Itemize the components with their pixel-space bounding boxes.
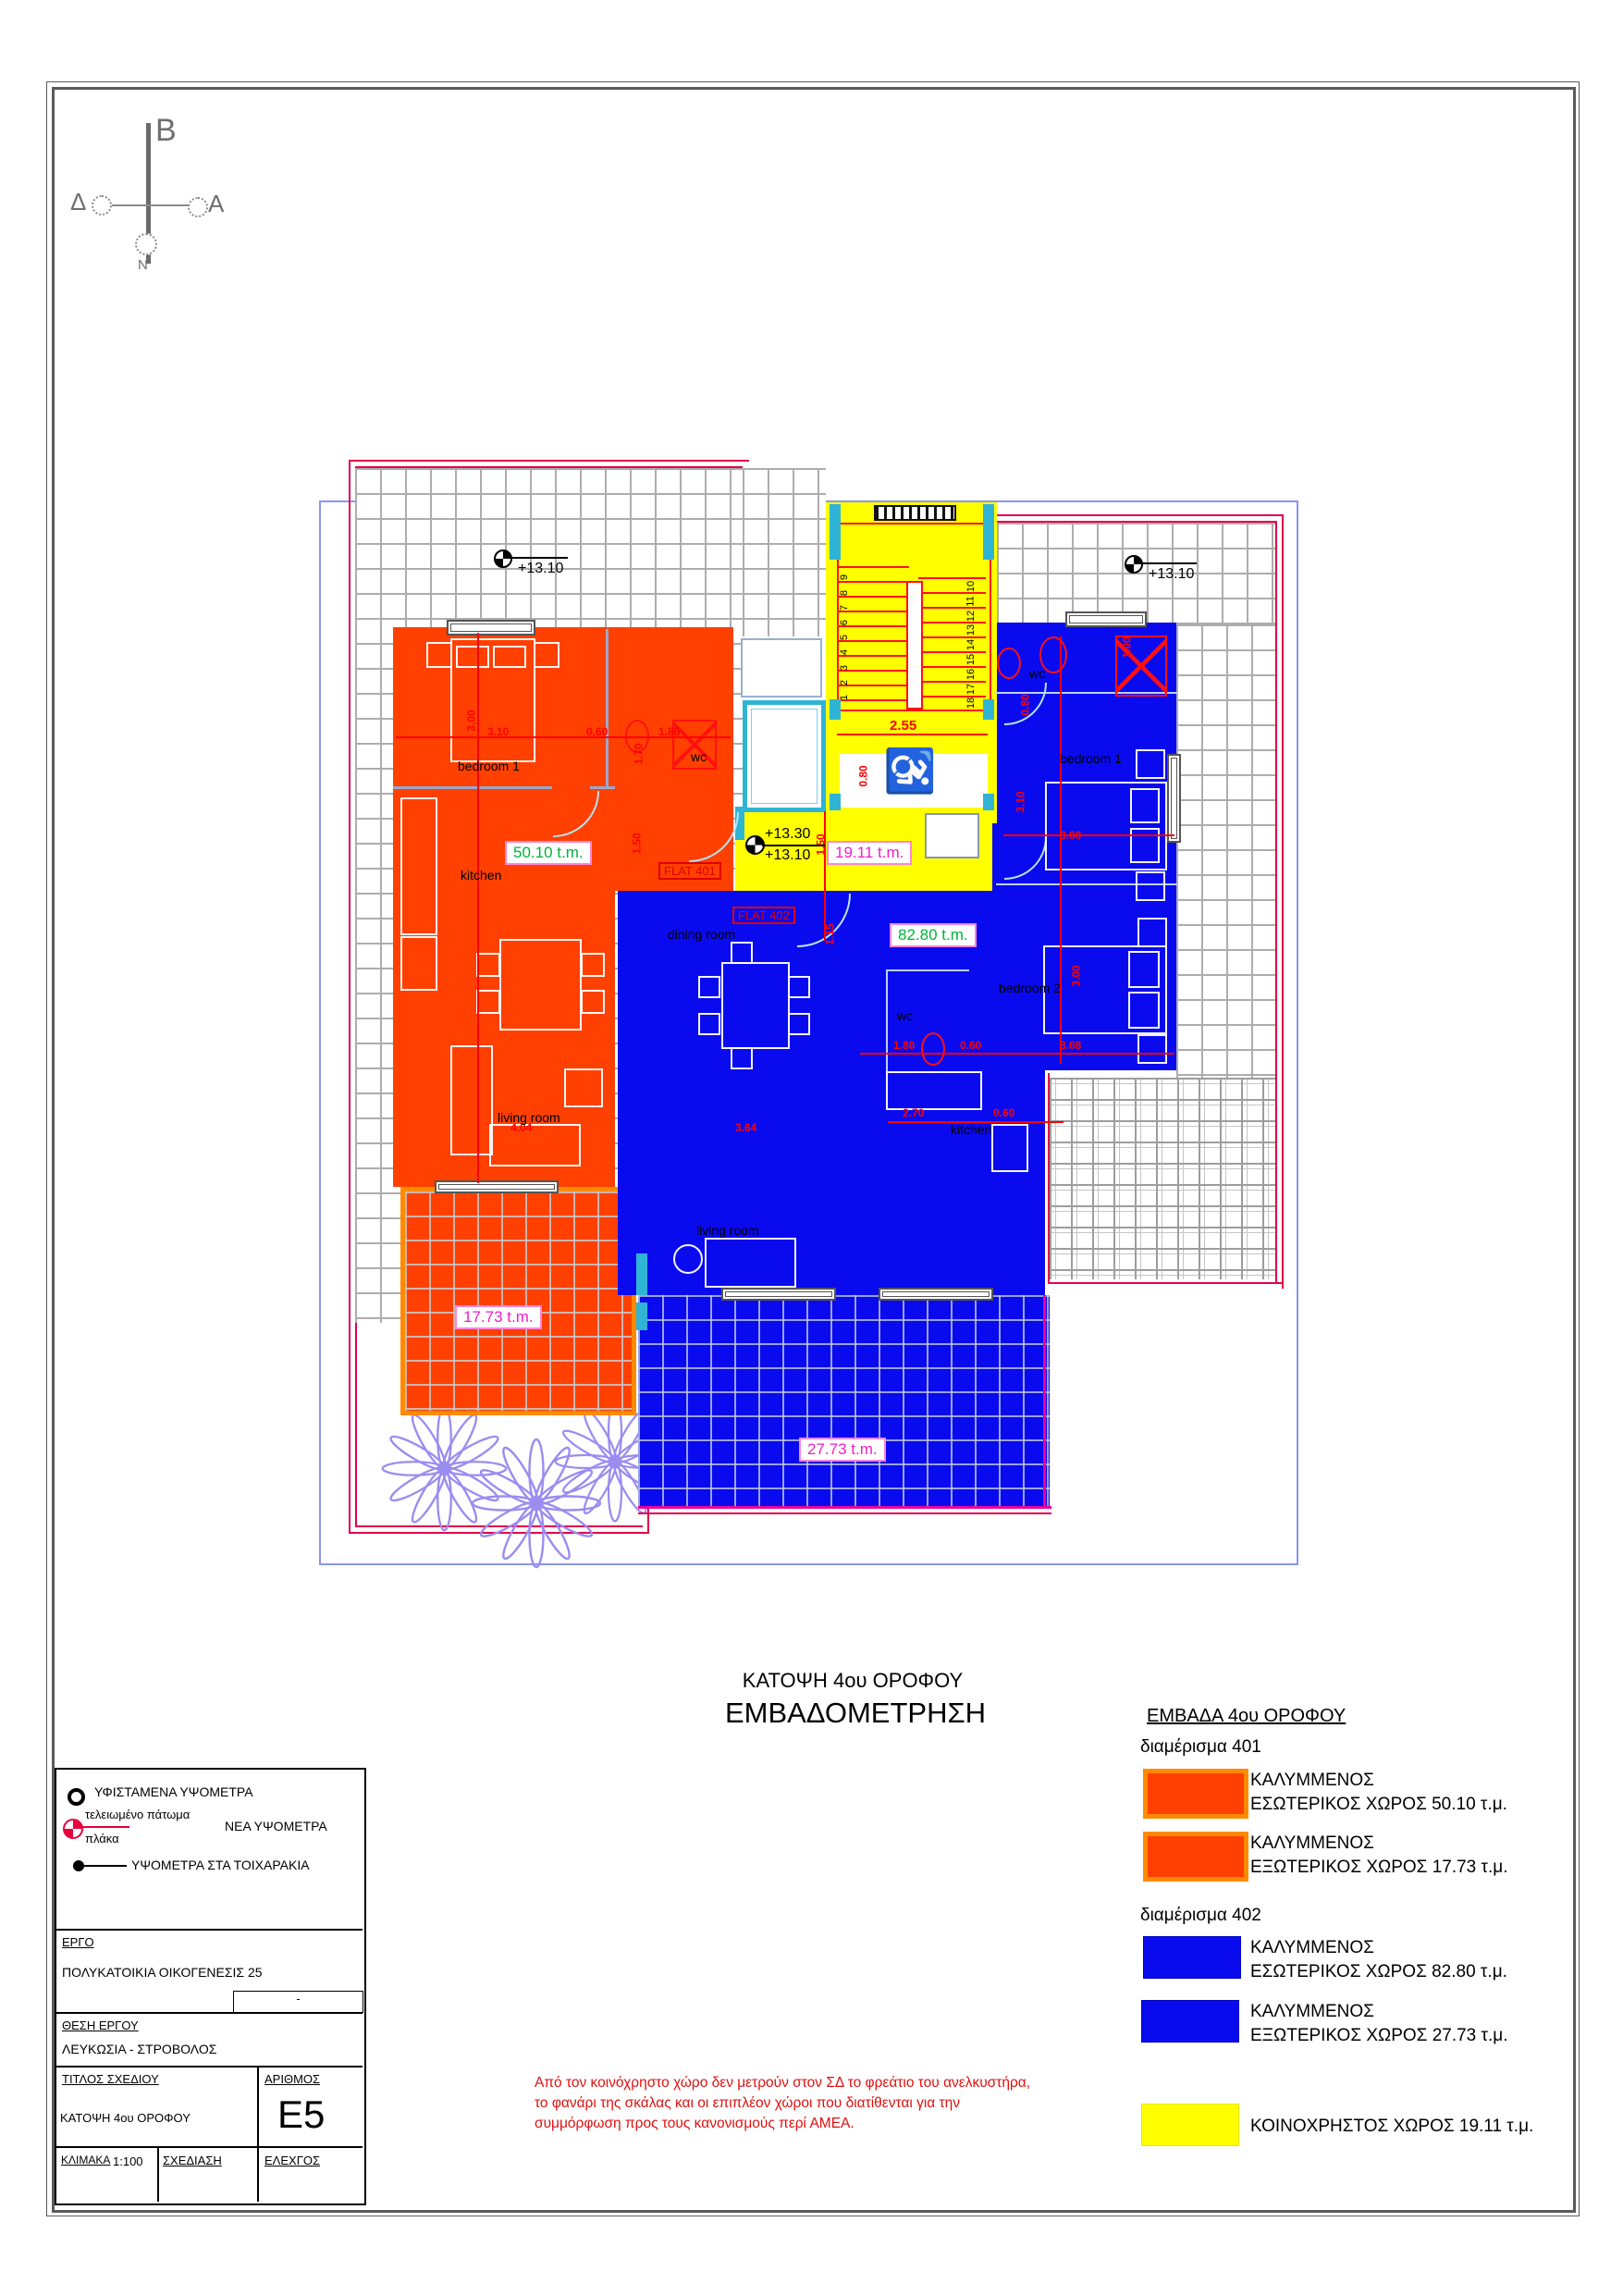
window xyxy=(721,1288,836,1301)
armchair-drawing xyxy=(564,1068,603,1107)
parapet-line xyxy=(1282,514,1284,1289)
chair-drawing xyxy=(731,1047,753,1069)
terrace-tiles xyxy=(997,523,1275,624)
note-line: Από τον κοινόχρηστο χώρο δεν μετρούν στο… xyxy=(535,2075,1030,2092)
compass-east-label: A xyxy=(208,190,224,218)
elevator-machine-room xyxy=(741,638,822,697)
note-line: το φανάρι της σκάλας και οι επιπλέον χώρ… xyxy=(535,2095,960,2112)
titleblock-klimaka-label: ΚΛΙΜΑΚΑ xyxy=(61,2154,110,2166)
sofa-drawing xyxy=(489,1124,581,1167)
legend-row-value: ΕΞΩΤΕΡΙΚΟΣ ΧΩΡΟΣ 27.73 τ.μ. xyxy=(1250,2026,1508,2046)
room-label: dining room xyxy=(668,927,735,942)
nightstand-drawing xyxy=(1137,1034,1167,1064)
veranda-edge-line xyxy=(638,1512,1051,1514)
benchmark-label: +13.10 xyxy=(1149,566,1194,583)
pillow-drawing xyxy=(456,646,489,668)
benchmark-label: +13.10 xyxy=(518,561,563,577)
pillow-drawing xyxy=(1130,788,1160,823)
kitchen-counter-drawing xyxy=(400,797,437,935)
legend-covered-label: ΚΑΛΥΜΜΕΝΟΣ xyxy=(1250,1833,1374,1854)
chair-drawing xyxy=(581,990,605,1014)
dimension-label: 1.00 xyxy=(1121,636,1134,658)
wall-segment xyxy=(886,969,969,971)
window xyxy=(1065,611,1147,627)
chair-drawing xyxy=(476,953,500,977)
room-label: living room xyxy=(498,1110,560,1125)
duct-box xyxy=(925,813,979,858)
legend-covered-label: ΚΑΛΥΜΜΕΝΟΣ xyxy=(1250,1771,1374,1791)
wall-segment xyxy=(886,969,888,1071)
wall-segment xyxy=(636,1253,647,1295)
window xyxy=(879,1288,993,1301)
dimension-label: 3.10 xyxy=(487,725,509,738)
parapet-line xyxy=(349,460,749,462)
dimension-line xyxy=(860,1053,1174,1055)
legend-row-value: ΕΣΩΤΕΡΙΚΟΣ ΧΩΡΟΣ 82.80 τ.μ. xyxy=(1250,1962,1507,1982)
benchmark-line xyxy=(1141,562,1197,564)
titleblock-divider xyxy=(157,2146,159,2202)
dimension-label: 1.15 xyxy=(824,923,837,944)
legend-covered-label: ΚΑΛΥΜΜΕΝΟΣ xyxy=(1250,1938,1374,1958)
wall-segment xyxy=(590,786,615,789)
area-label-f401-veranda: 17.73 t.m. xyxy=(455,1305,542,1329)
dimension-line xyxy=(396,736,731,738)
titleblock-divider xyxy=(55,1929,363,1931)
terrace-tiles xyxy=(1176,624,1275,1078)
room-label: wc xyxy=(897,1008,913,1023)
plant-pot-drawing xyxy=(673,1244,703,1274)
room-label: living room xyxy=(696,1223,759,1238)
room-label: kitchen xyxy=(951,1122,991,1137)
chair-drawing xyxy=(731,942,753,964)
room-label: wc xyxy=(1029,666,1045,681)
flat401-veranda xyxy=(400,1187,636,1415)
dimension-label: 2.55 xyxy=(890,718,916,734)
benchmark-label: +13.10 xyxy=(765,847,810,864)
titleblock-titlos-value: ΚΑΤΟΨΗ 4ου ΟΡΟΦΟΥ xyxy=(60,2111,191,2125)
nightstand-drawing xyxy=(1137,918,1167,947)
window xyxy=(1167,754,1181,843)
room-label: wc xyxy=(691,749,707,764)
titleblock-ergo-label: ΕΡΓΟ xyxy=(62,1935,94,1949)
veranda-edge-line xyxy=(638,1506,1051,1509)
dimension-label: 3.00 xyxy=(1060,829,1081,842)
parapet-line xyxy=(1048,1282,1282,1284)
wheelchair-icon: ♿ xyxy=(884,745,935,797)
sink-drawing xyxy=(997,648,1021,679)
elevator-shaft xyxy=(743,700,826,812)
legend-swatch-blue xyxy=(1143,1936,1241,1979)
wall-elevation-icon xyxy=(73,1860,84,1871)
new-elevation-line xyxy=(80,1826,129,1828)
wall-segment xyxy=(636,1302,647,1330)
benchmark-line xyxy=(762,845,825,846)
stove-drawing xyxy=(991,1124,1028,1172)
dimension-label: 3.10 xyxy=(1014,791,1027,812)
terrace-tiles-dense xyxy=(1050,1078,1275,1279)
nightstand-drawing xyxy=(1136,749,1165,779)
existing-elevation-icon xyxy=(68,1788,85,1806)
legend-row-value: ΕΣΩΤΕΡΙΚΟΣ ΧΩΡΟΣ 50.10 τ.μ. xyxy=(1250,1795,1507,1815)
titleblock-thesi-label: ΘΕΣΗ ΕΡΓΟΥ xyxy=(62,2018,139,2032)
titleblock-arithmos-label: ΑΡΙΘΜΟΣ xyxy=(264,2072,320,2086)
titleblock-ergo-value: ΠΟΛΥΚΑΤΟΙΚΙΑ ΟΙΚΟΓΕΝΕΣΙΣ 25 xyxy=(62,1965,263,1980)
veranda-edge-line xyxy=(1043,1295,1046,1508)
parapet-line xyxy=(349,460,350,1534)
toilet-drawing xyxy=(921,1032,945,1066)
pillow-drawing xyxy=(1128,951,1160,988)
dining-table-drawing xyxy=(499,939,582,1031)
wall-elevation-line xyxy=(84,1865,127,1867)
wall-segment xyxy=(606,629,609,788)
kitchen-counter-drawing xyxy=(400,936,437,991)
compass-south-label: N xyxy=(138,257,148,273)
flat401-label: FLAT 401 xyxy=(658,862,721,880)
wall-segment xyxy=(393,786,552,789)
pillow-drawing xyxy=(1130,828,1160,863)
legend-apt401: διαμέρισμα 401 xyxy=(1140,1737,1261,1758)
titleblock-titlos-label: ΤΙΤΛΟΣ ΣΧΕΔΙΟΥ xyxy=(62,2072,159,2086)
benchmark-label: +13.30 xyxy=(765,826,810,843)
symbols-finished-floor-label: τελειωμένο πάτωμα xyxy=(85,1808,190,1821)
drawing-subtitle: ΕΜΒΑΔΟΜΕΤΡΗΣΗ xyxy=(670,1697,1040,1730)
legend-covered-label: ΚΑΛΥΜΜΕΝΟΣ xyxy=(1250,2002,1374,2022)
room-label: bedroom 2 xyxy=(999,981,1061,995)
wall-segment xyxy=(983,794,994,810)
sofa-drawing xyxy=(705,1238,796,1288)
drawing-title: ΚΑΤΟΨΗ 4ου ΟΡΟΦΟΥ xyxy=(668,1669,1038,1693)
titleblock-elegxos-label: ΕΛΕΧΓΟΣ xyxy=(264,2154,320,2167)
dimension-label: 3.64 xyxy=(735,1121,756,1134)
legend-swatch-orange xyxy=(1143,1769,1248,1819)
pillow-drawing xyxy=(493,646,526,668)
chair-drawing xyxy=(476,990,500,1014)
titleblock-divider xyxy=(55,2012,363,2014)
compass-south-icon xyxy=(135,233,157,255)
dimension-label: 0.80 xyxy=(1019,694,1032,715)
compass-east-icon xyxy=(188,197,208,217)
area-label-f402-veranda: 27.73 t.m. xyxy=(799,1438,886,1462)
dimension-line xyxy=(1060,636,1062,1064)
titleblock-divider xyxy=(55,2146,363,2148)
titleblock-divider xyxy=(55,2066,363,2068)
symbols-walls-label: ΥΨΟΜΕΤΡΑ ΣΤΑ ΤΟΙΧΑΡΑΚΙΑ xyxy=(131,1858,310,1872)
legend-swatch-yellow xyxy=(1141,2104,1239,2146)
wall-segment xyxy=(830,699,841,720)
window xyxy=(447,620,535,636)
dimension-line xyxy=(824,811,826,941)
benchmark-icon xyxy=(494,549,512,568)
nightstand-drawing xyxy=(426,642,452,668)
benchmark-icon xyxy=(1125,555,1143,574)
symbols-new-label: ΝΕΑ ΥΨΟΜΕΤΡΑ xyxy=(225,1819,327,1833)
drawing-sheet: B Δ A N xyxy=(0,0,1623,2296)
dimension-label: 0.60 xyxy=(993,1106,1014,1119)
dimension-label: 1.86 xyxy=(658,725,680,738)
window xyxy=(435,1180,559,1193)
legend-swatch-blue xyxy=(1141,2000,1239,2043)
nightstand-drawing xyxy=(1136,871,1165,901)
terrace-tiles xyxy=(743,468,826,636)
symbols-existing-label: ΥΦΙΣΤΑΜΕΝΑ ΥΨΟΜΕΤΡΑ xyxy=(94,1784,253,1799)
dimension-label: 2.70 xyxy=(903,1106,924,1119)
symbols-slab-label: πλάκα xyxy=(85,1832,119,1845)
dimension-label: 3.00 xyxy=(465,710,478,731)
dimension-line xyxy=(1003,834,1174,836)
chair-drawing xyxy=(698,976,720,998)
wall-segment xyxy=(983,699,994,720)
area-label-f402-interior: 82.80 t.m. xyxy=(890,923,977,947)
pillow-drawing xyxy=(1128,992,1160,1029)
room-label: bedroom 1 xyxy=(458,759,520,773)
dimension-line xyxy=(837,734,988,735)
kitchen-counter-drawing xyxy=(886,1071,982,1110)
flat402-label: FLAT 402 xyxy=(732,907,795,924)
sofa-drawing xyxy=(450,1045,493,1155)
legend-apt402: διαμέρισμα 402 xyxy=(1140,1906,1261,1926)
dimension-label: 1.80 xyxy=(893,1039,915,1052)
wall-segment xyxy=(830,794,841,810)
wall-segment xyxy=(983,504,994,560)
dimension-label: 3.08 xyxy=(1060,1039,1081,1052)
titleblock-divider xyxy=(257,2066,259,2202)
room-label: kitchen xyxy=(461,868,501,883)
legend-row-value: ΚΟΙΝΟΧΡΗΣΤΟΣ ΧΩΡΟΣ 19.11 τ.μ. xyxy=(1250,2117,1533,2137)
nightstand-drawing xyxy=(534,642,559,668)
room-label: bedroom 1 xyxy=(1060,751,1122,766)
wall-segment xyxy=(830,504,841,560)
chair-drawing xyxy=(788,976,810,998)
note-line: συμμόρφωση προς τους κανονισμούς περί ΑΜ… xyxy=(535,2116,855,2132)
titleblock-sxediasi-label: ΣΧΕΔΙΑΣΗ xyxy=(163,2154,222,2167)
dimension-label: 3.00 xyxy=(1070,965,1083,986)
dimension-label: 1.50 xyxy=(631,833,644,854)
chair-drawing xyxy=(698,1013,720,1035)
legend-row-value: ΕΞΩΤΕΡΙΚΟΣ ΧΩΡΟΣ 17.73 τ.μ. xyxy=(1250,1858,1508,1878)
compass-west-label: Δ xyxy=(70,188,86,216)
titleblock-klimaka-value: 1:100 xyxy=(113,2154,143,2168)
new-elevation-icon xyxy=(63,1819,83,1839)
dimension-label: 0.60 xyxy=(960,1039,981,1052)
chair-drawing xyxy=(788,1013,810,1035)
parapet-line xyxy=(1275,521,1277,1282)
dining-table-drawing xyxy=(721,962,790,1049)
legend-swatch-orange xyxy=(1143,1832,1248,1882)
vent-grille xyxy=(874,505,956,521)
dimension-label: 0.60 xyxy=(586,725,608,738)
chair-drawing xyxy=(581,953,605,977)
area-label-common: 19.11 t.m. xyxy=(827,841,912,865)
dimension-label: 0.80 xyxy=(857,765,870,786)
titleblock-arithmos-value: E5 xyxy=(277,2092,325,2137)
titleblock-revision-box: - xyxy=(233,1991,363,2013)
compass-west-icon xyxy=(92,195,112,216)
benchmark-line xyxy=(510,557,568,559)
stair-center-wall xyxy=(906,581,923,710)
compass-north-label: B xyxy=(155,113,177,149)
dimension-label: 1.70 xyxy=(633,743,646,764)
titleblock-thesi-value: ΛΕΥΚΩΣΙΑ - ΣΤΡΟΒΟΛΟΣ xyxy=(62,2042,216,2056)
legend-title: ΕΜΒΑΔΑ 4ου ΟΡΟΦΟΥ xyxy=(1147,1706,1346,1727)
flat402-veranda xyxy=(638,1295,1050,1506)
area-label-f401-interior: 50.10 t.m. xyxy=(505,841,592,865)
